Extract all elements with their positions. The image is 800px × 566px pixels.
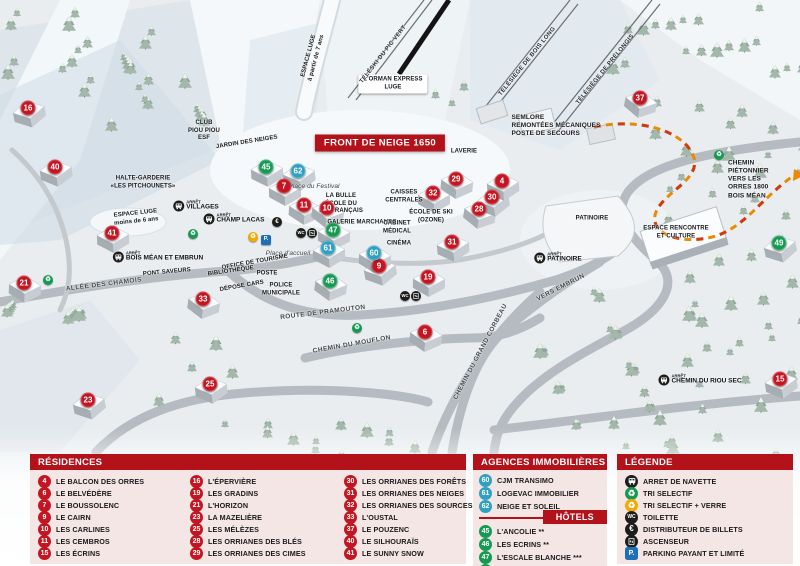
map-marker-19: 19 (421, 270, 436, 285)
legende-label: DISTRIBUTEUR DE BILLETS (643, 525, 743, 534)
residence-label: LE BELVÉDÈRE (56, 489, 112, 498)
map-label-7: CLUB PIOU PIOU ESF (188, 120, 220, 143)
residence-label: LES ORRIANES DES FORÊTS (362, 477, 466, 486)
legende-label: TRI SELECTIF + VERRE (643, 501, 726, 510)
ascenseur-icon (625, 535, 638, 548)
residence-number-badge: 11 (38, 535, 51, 548)
panel-residences: RÉSIDENCES 4LE BALCON DES ORRES6LE BELVÉ… (30, 454, 466, 564)
legende-label: ARRET DE NAVETTE (643, 477, 716, 486)
hotel-label: LES ECRINS ** (497, 540, 549, 549)
recycle-green-icon: ♻ (188, 229, 198, 239)
residence-label: LES CEMBROS (56, 537, 110, 546)
legend-strip: RÉSIDENCES 4LE BALCON DES ORRES6LE BELVÉ… (0, 450, 800, 566)
legende-item: €DISTRIBUTEUR DE BILLETS (625, 523, 789, 535)
map-marker-28: 28 (472, 202, 487, 217)
map-label-13: LAVERIE (451, 148, 477, 156)
residence-item: 40LE SILHOURAÏS (344, 535, 473, 547)
residence-label: LES ORRIANES DES CIMES (208, 549, 306, 558)
residence-item: 23LA MAZELIÈRE (190, 511, 342, 523)
map-label-17: Place du Festival (288, 183, 339, 191)
map-label-32: CHEMIN PIÉTONNIER VERS LES ORRES 1800 BO… (728, 160, 776, 201)
bus-stop-label: ARRÊTCHEMIN DU RIOU SEC (671, 375, 741, 386)
residence-item: 29LES ORRIANES DES CIMES (190, 547, 342, 559)
map-marker-16: 16 (21, 101, 36, 116)
parking-icon: P. (261, 235, 271, 245)
map-marker-21: 21 (17, 276, 32, 291)
residence-number-badge: 32 (344, 499, 357, 512)
residence-item: 7LE BOUSSOLENC (38, 499, 188, 511)
map-marker-47: 47 (326, 223, 341, 238)
map-marker-31: 31 (445, 235, 460, 250)
residence-label: L'OUSTAL (362, 513, 398, 522)
legende-item: P.PARKING PAYANT ET LIMITÉ (625, 547, 789, 559)
residence-number-badge: 21 (190, 499, 203, 512)
front-de-neige-banner: FRONT DE NEIGE 1650 (315, 135, 445, 152)
residence-label: LE CAIRN (56, 513, 91, 522)
parking-icon: P. (625, 547, 638, 560)
residence-number-badge: 37 (344, 523, 357, 536)
map-label-30: PATINOIRE (576, 215, 609, 223)
residence-item: 11LES CEMBROS (38, 535, 188, 547)
agences-header: AGENCES IMMOBILIÈRES (473, 454, 607, 470)
residence-number-badge: 16 (190, 475, 203, 488)
map-marker-37: 37 (633, 91, 648, 106)
map-marker-9: 9 (372, 259, 387, 274)
wc-icon: WC (296, 228, 306, 238)
residence-item: 25LES MÉLÈZES (190, 523, 342, 535)
bus-icon (658, 375, 669, 386)
recycle-green-icon: ♻ (625, 487, 638, 500)
recycle-green-icon: ♻ (714, 150, 724, 160)
euro-icon: € (625, 523, 638, 536)
residence-item: 10LES CARLINES (38, 523, 188, 535)
residence-label: LE SILHOURAÏS (362, 537, 419, 546)
agency-number-badge: 62 (479, 500, 492, 513)
map-marker-15: 15 (773, 372, 788, 387)
residence-item: 21L'HORIZON (190, 499, 342, 511)
residence-item: 9LE CAIRN (38, 511, 188, 523)
legende-item: ♻TRI SELECTIF + VERRE (625, 499, 789, 511)
legende-item: WCTOILETTE (625, 511, 789, 523)
residence-item: 31LES ORRIANES DES NEIGES (344, 487, 473, 499)
map-marker-30: 30 (485, 190, 500, 205)
residence-item: 28LES ORRIANES DES BLÉS (190, 535, 342, 547)
recycle-green-icon: ♻ (352, 323, 362, 333)
hotel-item: 46LES ECRINS ** (479, 538, 603, 551)
residence-label: LE BALCON DES ORRES (56, 477, 144, 486)
legende-label: TOILETTE (643, 513, 678, 522)
hotels-header: HÔTELS (543, 510, 607, 524)
legende-label: TRI SELECTIF (643, 489, 693, 498)
residence-label: LES ÉCRINS (56, 549, 100, 558)
residence-number-badge: 40 (344, 535, 357, 548)
bus-stop-patinoire: ARRÊTPATINOIRE (534, 253, 581, 264)
hotels-divider: HÔTELS (479, 517, 603, 519)
bus-icon (534, 253, 545, 264)
residence-label: LES ORRIANES DES BLÉS (208, 537, 302, 546)
residence-label: LE SUNNY SNOW (362, 549, 424, 558)
residence-label: LA MAZELIÈRE (208, 513, 262, 522)
residences-list: 4LE BALCON DES ORRES6LE BELVÉDÈRE7LE BOU… (30, 470, 466, 564)
recycle-orange-icon: ♻ (248, 232, 258, 242)
bus-stop-label: ARRÊTBOIS MÉAN ET EMBRUN (126, 252, 203, 263)
legende-header: LÉGENDE (617, 454, 793, 470)
map-label-4: SEMLORE REMONTÉES MÉCANIQUES POSTE DE SE… (511, 114, 600, 138)
residence-item: 6LE BELVÉDÈRE (38, 487, 188, 499)
residence-item: 30LES ORRIANES DES FORÊTS (344, 475, 473, 487)
residence-number-badge: 15 (38, 547, 51, 560)
bus-stop-villages: ARRÊTVILLAGES (173, 201, 219, 212)
bus-icon (113, 252, 124, 263)
residence-number-badge: 28 (190, 535, 203, 548)
map-marker-29: 29 (449, 172, 464, 187)
residence-label: LES ORRIANES DES NEIGES (362, 489, 464, 498)
map-marker-25: 25 (203, 377, 218, 392)
bus-icon (173, 201, 184, 212)
bus-stop-label: ARRÊTPATINOIRE (547, 253, 581, 264)
residence-item: 37LE POUZENC (344, 523, 473, 535)
bus-stop-chemin-du-riou-sec: ARRÊTCHEMIN DU RIOU SEC (658, 375, 741, 386)
map-marker-23: 23 (81, 393, 96, 408)
map-label-31: ESPACE RENCONTRE ET CULTURE (643, 226, 709, 241)
map-label-14: ÉCOLE DE SKI (OZONE) (409, 210, 453, 225)
ascenseur-icon (411, 291, 421, 301)
residence-number-badge: 25 (190, 523, 203, 536)
hotel-number-badge: 46 (479, 538, 492, 551)
map-marker-49: 49 (772, 236, 787, 251)
map-marker-10: 10 (320, 201, 335, 216)
ascenseur-icon (307, 228, 317, 238)
residence-number-badge: 6 (38, 487, 51, 500)
residence-number-badge: 29 (190, 547, 203, 560)
bus-stop-label: ARRÊTCHAMP LACAS (217, 214, 265, 225)
legende-item: ASCENSEUR (625, 535, 789, 547)
hotels-list: 45L'ANCOLIE **46LES ECRINS **47L'ESCALE … (479, 525, 603, 566)
map-marker-61: 61 (321, 241, 336, 256)
map-label-12: CAISSES CENTRALES (385, 190, 423, 205)
panel-legende: LÉGENDE ARRET DE NAVETTE♻TRI SELECTIF♻TR… (617, 454, 793, 564)
legende-item: ♻TRI SELECTIF (625, 487, 789, 499)
residence-label: LE POUZENC (362, 525, 409, 534)
wc-icon: WC (625, 511, 638, 524)
residence-label: LES ORRIANES DES SOURCES (362, 501, 473, 510)
residence-number-badge: 7 (38, 499, 51, 512)
map-marker-4: 4 (495, 174, 510, 189)
legende-item: ARRET DE NAVETTE (625, 475, 789, 487)
euro-icon: € (272, 217, 282, 227)
residence-label: LE BOUSSOLENC (56, 501, 119, 510)
hotel-label: L'ANCOLIE ** (497, 527, 544, 536)
residence-number-badge: 31 (344, 487, 357, 500)
legende-label: ASCENSEUR (643, 537, 689, 546)
map-marker-41: 41 (105, 226, 120, 241)
bus-stop-bois-m-an-et-embrun: ARRÊTBOIS MÉAN ET EMBRUN (113, 252, 203, 263)
residence-item: 15LES ÉCRINS (38, 547, 188, 559)
residence-label: LES CARLINES (56, 525, 110, 534)
map-label-22: POLICE MUNICIPALE (262, 283, 300, 298)
bus-stop-champ-lacas: ARRÊTCHAMP LACAS (204, 214, 265, 225)
map-label-9: HALTE-GARDERIE «LES PITCHOUNETS» (111, 176, 176, 191)
residence-number-badge: 41 (344, 547, 357, 560)
agency-item: 61LOGEVAC IMMOBILIER (479, 487, 603, 500)
hotel-label: L'ESCALE BLANCHE *** (497, 553, 582, 562)
map-marker-46: 46 (323, 274, 338, 289)
residence-item: 16L'ÉPERVIÈRE (190, 475, 342, 487)
map-marker-7: 7 (277, 179, 292, 194)
hotel-number-badge: 45 (479, 525, 492, 538)
residence-number-badge: 9 (38, 511, 51, 524)
residence-item: 32LES ORRIANES DES SOURCES (344, 499, 473, 511)
residence-item: 33L'OUSTAL (344, 511, 473, 523)
residences-header: RÉSIDENCES (30, 454, 466, 470)
map-marker-33: 33 (196, 292, 211, 307)
residence-number-badge: 23 (190, 511, 203, 524)
map-label-16: CINÉMA (387, 240, 411, 248)
wc-icon: WC (400, 291, 410, 301)
residence-label: LES MÉLÈZES (208, 525, 259, 534)
residence-label: L'ÉPERVIÈRE (208, 477, 256, 486)
residence-label: L'HORIZON (208, 501, 248, 510)
legende-list: ARRET DE NAVETTE♻TRI SELECTIF♻TRI SELECT… (617, 470, 793, 564)
panel-agences-hotels: AGENCES IMMOBILIÈRES 60CJM TRANSIMO61LOG… (473, 454, 607, 566)
residence-label: LES GRADINS (208, 489, 258, 498)
bus-icon (204, 214, 215, 225)
ski-resort-map-page: L'ORMAN EXPRESS LUGETÉLÉSKI DU PIC VERTT… (0, 0, 800, 566)
residence-number-badge: 4 (38, 475, 51, 488)
residence-number-badge: 33 (344, 511, 357, 524)
hotel-item: 47L'ESCALE BLANCHE *** (479, 551, 603, 564)
agences-hotels-body: 60CJM TRANSIMO61LOGEVAC IMMOBILIER62NEIG… (473, 470, 607, 566)
agency-label: CJM TRANSIMO (497, 476, 554, 485)
residence-number-badge: 19 (190, 487, 203, 500)
recycle-orange-icon: ♻ (625, 499, 638, 512)
agency-number-badge: 60 (479, 474, 492, 487)
legende-label: PARKING PAYANT ET LIMITÉ (643, 549, 744, 558)
residence-number-badge: 10 (38, 523, 51, 536)
map-marker-60: 60 (367, 246, 382, 261)
map-marker-32: 32 (426, 186, 441, 201)
residence-item: 4LE BALCON DES ORRES (38, 475, 188, 487)
hotel-number-badge: 47 (479, 551, 492, 564)
map-marker-62: 62 (291, 164, 306, 179)
bus-icon (625, 475, 638, 488)
map-marker-40: 40 (48, 160, 63, 175)
residence-item: 19LES GRADINS (190, 487, 342, 499)
residence-item: 41LE SUNNY SNOW (344, 547, 473, 559)
map-marker-45: 45 (259, 160, 274, 175)
agency-item: 60CJM TRANSIMO (479, 474, 603, 487)
map-marker-6: 6 (418, 325, 433, 340)
agency-number-badge: 61 (479, 487, 492, 500)
map-marker-11: 11 (297, 198, 312, 213)
map-label-21: POSTE (257, 270, 278, 278)
recycle-green-icon: ♻ (43, 275, 53, 285)
residence-number-badge: 30 (344, 475, 357, 488)
agences-list: 60CJM TRANSIMO61LOGEVAC IMMOBILIER62NEIG… (479, 474, 603, 513)
map-label-15: CABINET MÉDICAL (383, 221, 411, 236)
agency-label: LOGEVAC IMMOBILIER (497, 489, 579, 498)
hotel-item: 45L'ANCOLIE ** (479, 525, 603, 538)
bus-stop-label: ARRÊTVILLAGES (186, 201, 219, 212)
